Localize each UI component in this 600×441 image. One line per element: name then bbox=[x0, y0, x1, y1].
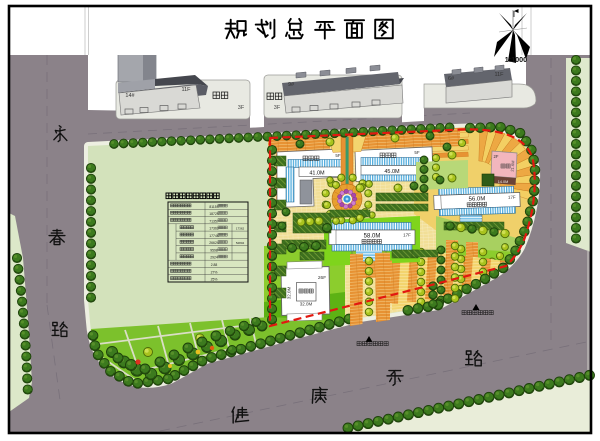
svg-text:5F: 5F bbox=[335, 153, 341, 158]
svg-text:41.0M: 41.0M bbox=[309, 171, 325, 177]
svg-text:6#: 6# bbox=[448, 76, 455, 82]
svg-text:11F: 11F bbox=[181, 87, 191, 93]
svg-text:2.88: 2.88 bbox=[211, 263, 218, 267]
svg-text:25%: 25% bbox=[211, 278, 218, 282]
svg-text:2924: 2924 bbox=[210, 256, 218, 260]
svg-text:14.0M: 14.0M bbox=[498, 180, 509, 184]
svg-text:56.0M: 56.0M bbox=[469, 196, 486, 203]
svg-text:26624: 26624 bbox=[209, 241, 219, 245]
svg-text:3F: 3F bbox=[238, 105, 245, 111]
svg-text:17362: 17362 bbox=[209, 227, 219, 231]
svg-text:32.0M: 32.0M bbox=[300, 302, 313, 307]
svg-text:71357: 71357 bbox=[209, 219, 219, 223]
svg-text:17362: 17362 bbox=[236, 227, 245, 231]
svg-text:18729: 18729 bbox=[209, 212, 219, 216]
svg-text:81159: 81159 bbox=[209, 205, 218, 209]
svg-text:1:1000: 1:1000 bbox=[505, 55, 527, 64]
svg-text:11F: 11F bbox=[494, 72, 504, 78]
svg-text:9#: 9# bbox=[288, 82, 295, 88]
svg-text:17F: 17F bbox=[508, 195, 516, 200]
svg-text:27%: 27% bbox=[211, 270, 218, 274]
svg-text:9598: 9598 bbox=[210, 249, 218, 253]
svg-text:52804: 52804 bbox=[236, 241, 245, 245]
svg-text:5F: 5F bbox=[414, 150, 420, 155]
svg-text:17746: 17746 bbox=[209, 234, 219, 238]
svg-text:45.0M: 45.0M bbox=[384, 169, 400, 175]
svg-text:2F: 2F bbox=[494, 154, 499, 159]
svg-text:3F: 3F bbox=[274, 105, 281, 111]
svg-text:17F: 17F bbox=[403, 233, 411, 238]
svg-text:26F: 26F bbox=[318, 275, 326, 281]
svg-text:32.0M: 32.0M bbox=[287, 286, 292, 299]
svg-text:21.6M: 21.6M bbox=[510, 160, 516, 172]
svg-text:58.0M: 58.0M bbox=[364, 234, 381, 240]
svg-text:14#: 14# bbox=[125, 93, 135, 99]
